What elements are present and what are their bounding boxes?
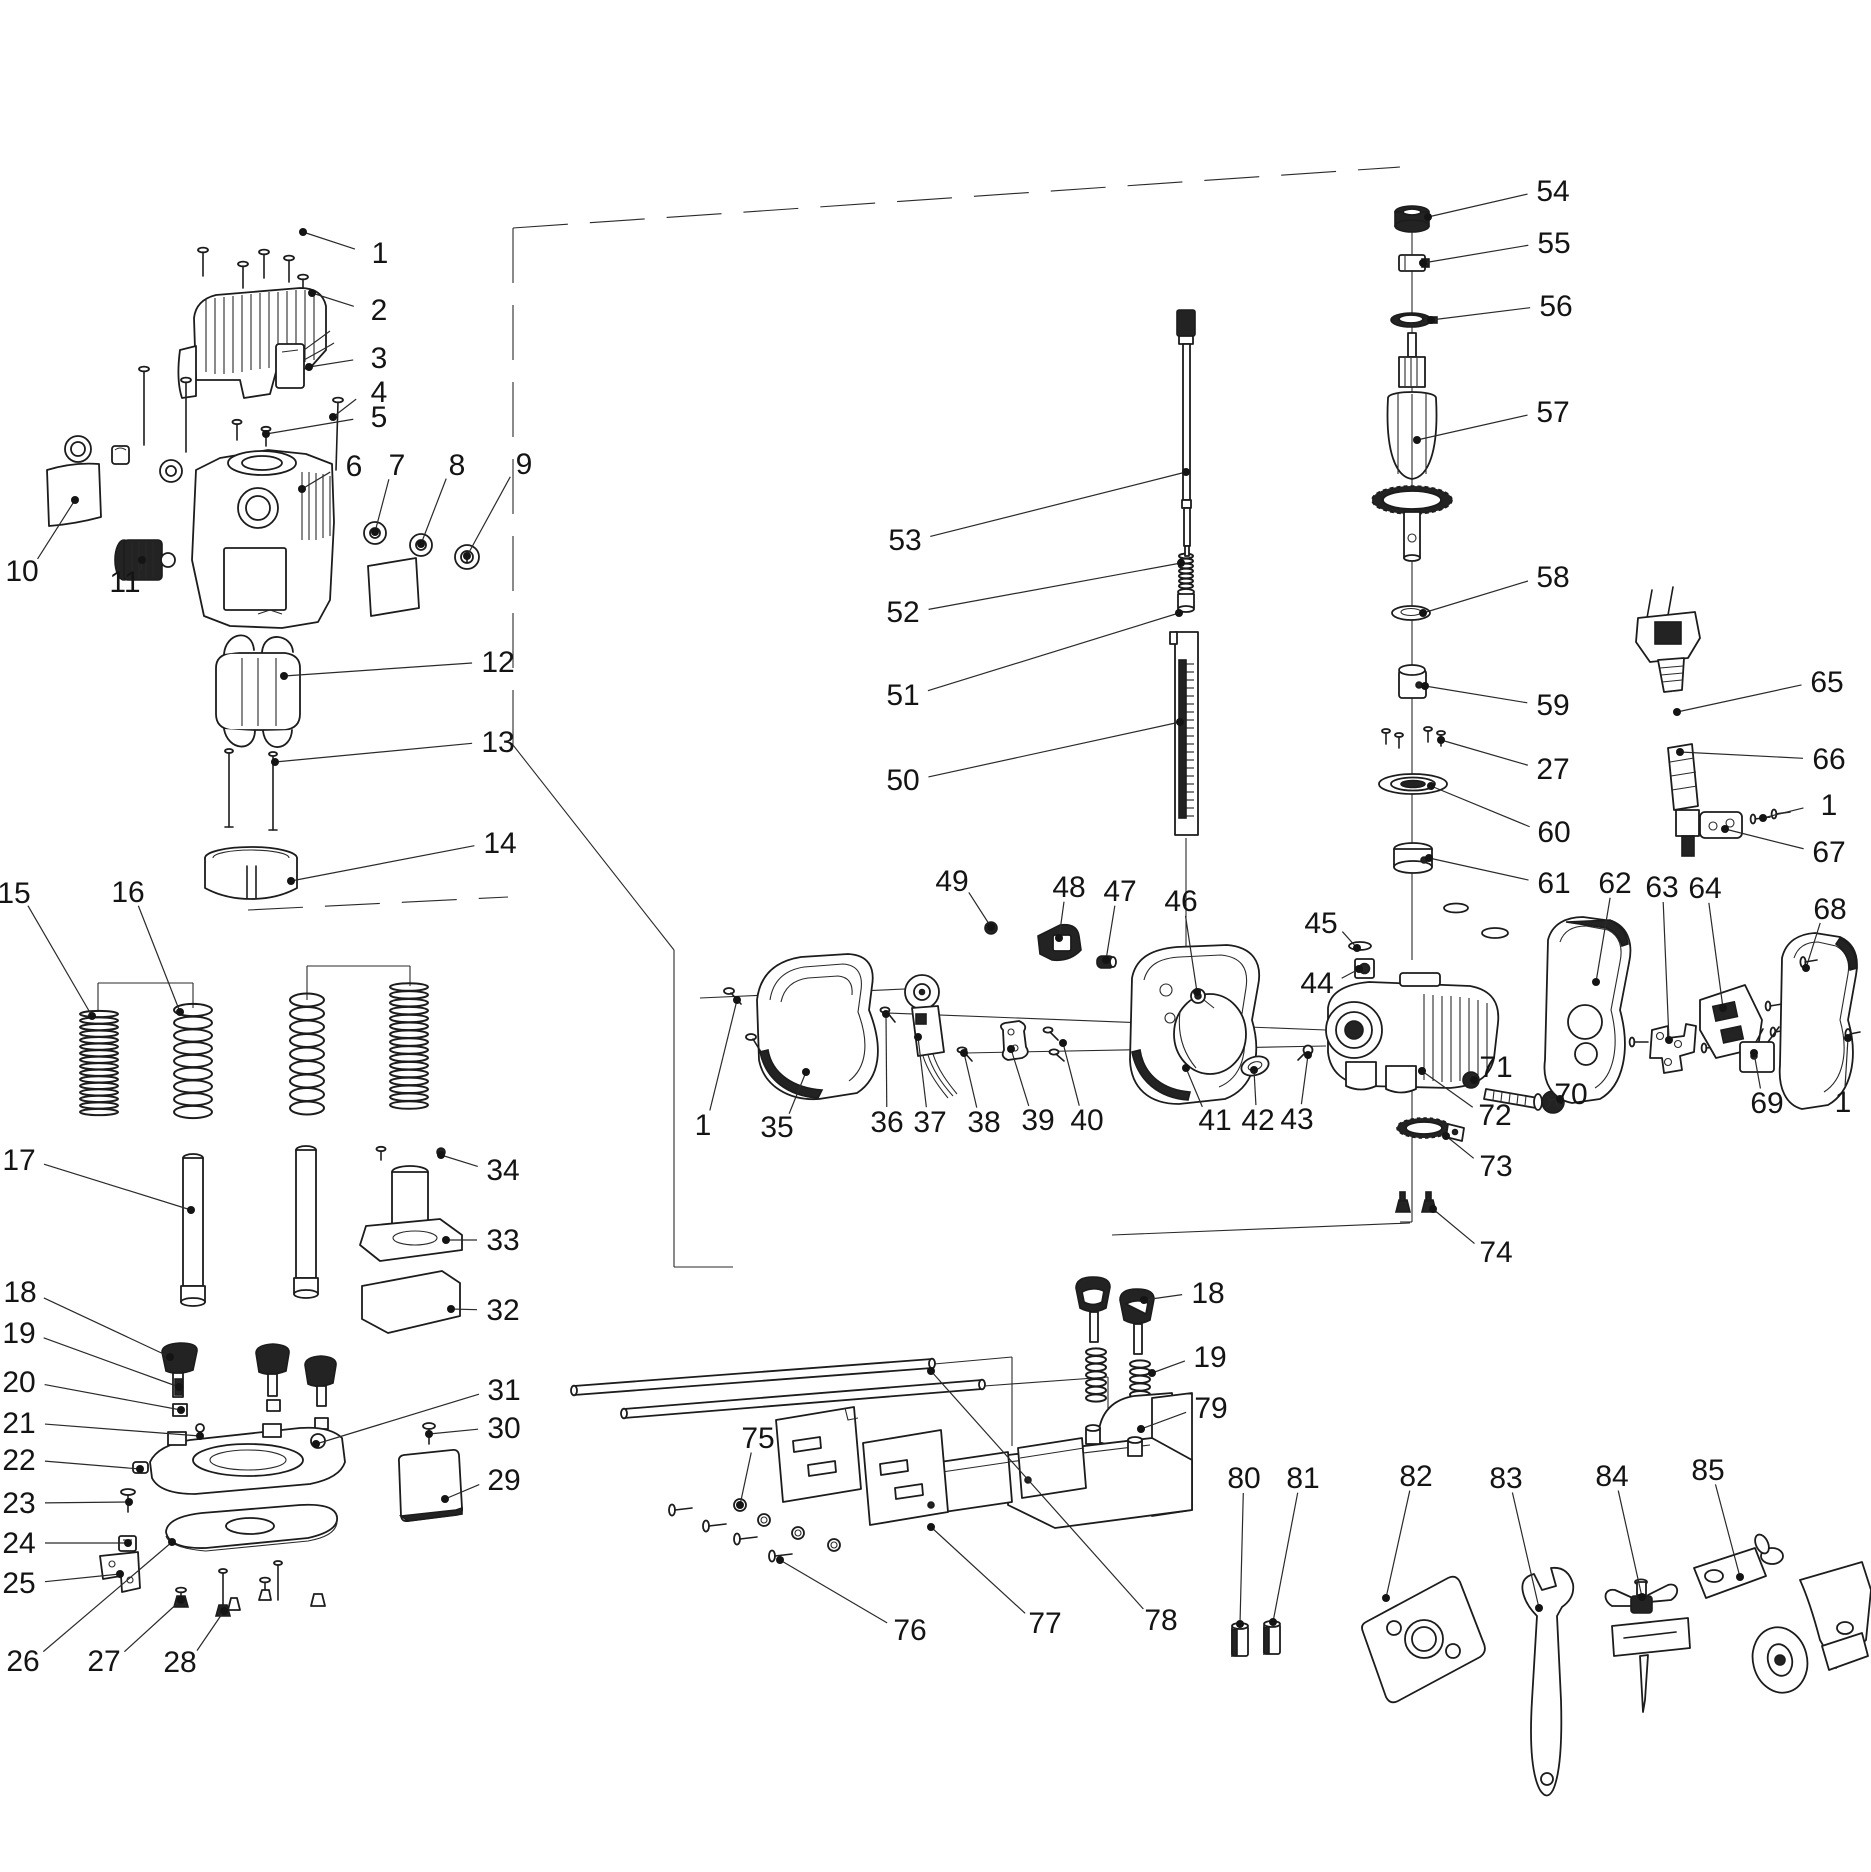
leader-dot bbox=[1418, 1067, 1426, 1075]
part-number: 62 bbox=[1598, 867, 1631, 900]
part-number: 1 bbox=[1835, 1086, 1852, 1119]
leader-line bbox=[45, 1424, 200, 1436]
callout-22: 22 bbox=[2, 1444, 144, 1477]
callout-43: 43 bbox=[1280, 1051, 1313, 1136]
gear-housing-cluster bbox=[1326, 917, 1860, 1212]
part-number: 10 bbox=[5, 555, 38, 588]
leader-line bbox=[441, 1155, 478, 1166]
part-number: 24 bbox=[2, 1527, 35, 1560]
leader-line bbox=[1433, 1209, 1475, 1244]
leader-line bbox=[45, 1461, 140, 1469]
edge-guide-assembly bbox=[571, 1277, 1192, 1562]
leader-line bbox=[266, 419, 353, 434]
callout-50: 50 bbox=[886, 718, 1184, 797]
leader-dot bbox=[1721, 825, 1729, 833]
callout-77: 77 bbox=[927, 1523, 1062, 1640]
callout-30: 30 bbox=[425, 1412, 521, 1445]
leader-line bbox=[710, 1000, 737, 1111]
plunge-spring-inner-right bbox=[290, 994, 324, 1115]
dust-cover bbox=[362, 1271, 460, 1333]
leader-dot bbox=[1535, 1604, 1543, 1612]
leader-line bbox=[929, 563, 1181, 609]
part-number: 5 bbox=[371, 401, 388, 434]
leader-dot bbox=[1424, 213, 1432, 221]
part-number: 23 bbox=[2, 1487, 35, 1520]
leader-dot bbox=[287, 877, 295, 885]
leader-dot bbox=[1137, 1425, 1145, 1433]
leader-line bbox=[780, 1560, 887, 1623]
leader-dot bbox=[138, 556, 146, 564]
part-number: 16 bbox=[111, 876, 144, 909]
leader-dot bbox=[914, 1033, 922, 1041]
leader-dot bbox=[1736, 1573, 1744, 1581]
accessories bbox=[1232, 1532, 1871, 1795]
leader-dot bbox=[927, 1367, 935, 1375]
leader-dot bbox=[960, 1049, 968, 1057]
nameplate-right bbox=[368, 558, 419, 616]
leader-dot bbox=[298, 485, 306, 493]
spindle-flange bbox=[1397, 1118, 1464, 1141]
leader-line bbox=[284, 663, 472, 676]
part-number: 1 bbox=[1821, 789, 1838, 822]
guide-knob-spring-1 bbox=[1086, 1348, 1106, 1401]
left-handle-screws bbox=[724, 988, 761, 1052]
part-number: 35 bbox=[760, 1111, 793, 1144]
part-number: 13 bbox=[481, 726, 514, 759]
leader-dot bbox=[177, 1406, 185, 1414]
callout-82: 82 bbox=[1382, 1460, 1433, 1602]
callout-54: 54 bbox=[1424, 175, 1570, 221]
wrench bbox=[1522, 1568, 1573, 1796]
right-handle-shell bbox=[1130, 945, 1259, 1104]
callout-1: 1 bbox=[695, 996, 741, 1142]
callout-39: 39 bbox=[1007, 1045, 1055, 1137]
part-number: 80 bbox=[1227, 1462, 1260, 1495]
part-number: 49 bbox=[935, 865, 968, 898]
callout-19: 19 bbox=[1148, 1341, 1227, 1377]
leader-dot bbox=[1425, 854, 1433, 862]
construction-line-10 bbox=[934, 1357, 1012, 1364]
leader-line bbox=[291, 846, 474, 881]
part-number: 42 bbox=[1241, 1104, 1274, 1137]
part-number: 73 bbox=[1479, 1150, 1512, 1183]
part-number: 68 bbox=[1813, 893, 1846, 926]
leader-dot bbox=[1421, 682, 1429, 690]
part-number: 15 bbox=[0, 877, 31, 910]
callout-73: 73 bbox=[1442, 1132, 1513, 1183]
leader-dot bbox=[1250, 1066, 1258, 1074]
leader-line bbox=[44, 1298, 170, 1357]
sub-base-plate bbox=[166, 1505, 337, 1551]
guide-rails bbox=[571, 1359, 985, 1419]
guide-posts bbox=[181, 1146, 318, 1306]
part-number: 84 bbox=[1595, 1460, 1628, 1493]
leader-dot bbox=[1353, 944, 1361, 952]
leader-dot bbox=[1676, 748, 1684, 756]
trammel-guide bbox=[1694, 1532, 1871, 1698]
leader-dot bbox=[1175, 609, 1183, 617]
leader-line bbox=[1273, 1493, 1298, 1622]
leader-dot bbox=[1177, 559, 1185, 567]
part-number: 71 bbox=[1479, 1051, 1512, 1084]
motor-housing bbox=[192, 450, 334, 628]
leader-dot bbox=[1182, 468, 1190, 476]
leader-dot bbox=[417, 540, 425, 548]
plunge-spring-outer-left bbox=[80, 1011, 118, 1115]
part-number: 27 bbox=[1536, 753, 1569, 786]
part-number: 38 bbox=[967, 1106, 1000, 1139]
bearing-screws bbox=[1382, 727, 1445, 748]
part-number: 48 bbox=[1052, 871, 1085, 904]
leader-line bbox=[1063, 1043, 1079, 1106]
guide-screws bbox=[669, 1499, 840, 1562]
depth-rod bbox=[1177, 310, 1195, 556]
callout-17: 17 bbox=[2, 1144, 195, 1214]
part-number: 81 bbox=[1286, 1462, 1319, 1495]
part-number: 22 bbox=[2, 1444, 35, 1477]
callout-49: 49 bbox=[935, 865, 995, 931]
part-number: 75 bbox=[741, 1422, 774, 1455]
leader-line bbox=[1431, 308, 1530, 320]
part-number: 9 bbox=[516, 448, 533, 481]
leader-line bbox=[1423, 581, 1528, 613]
leader-dot bbox=[1355, 965, 1363, 973]
part-number: 46 bbox=[1164, 885, 1197, 918]
part-number: 41 bbox=[1198, 1104, 1231, 1137]
leader-dot bbox=[305, 363, 313, 371]
leader-dot bbox=[116, 1570, 124, 1578]
leader-dot bbox=[1382, 1594, 1390, 1602]
leader-dot bbox=[1673, 708, 1681, 716]
nameplate-left bbox=[47, 464, 101, 526]
leader-line bbox=[1680, 752, 1803, 758]
washer-small bbox=[1482, 928, 1508, 938]
callout-40: 40 bbox=[1059, 1039, 1104, 1137]
switch-dial bbox=[905, 975, 957, 1098]
cover-screws bbox=[198, 248, 308, 293]
part-number: 7 bbox=[389, 449, 406, 482]
leader-dot bbox=[927, 1523, 935, 1531]
leader-dot bbox=[1437, 736, 1445, 744]
callout-5: 5 bbox=[262, 401, 387, 438]
part-number: 18 bbox=[1191, 1277, 1224, 1310]
leader-dot bbox=[271, 758, 279, 766]
part-number: 83 bbox=[1489, 1462, 1522, 1495]
part-number: 12 bbox=[481, 646, 514, 679]
leader-line bbox=[930, 472, 1186, 536]
callout-84: 84 bbox=[1595, 1460, 1646, 1601]
part-number: 58 bbox=[1536, 561, 1569, 594]
clamp-ring bbox=[205, 847, 297, 899]
callout-14: 14 bbox=[287, 827, 517, 885]
leader-dot bbox=[882, 1010, 890, 1018]
leader-line bbox=[303, 232, 355, 249]
leader-dot bbox=[1193, 988, 1201, 996]
part-number: 33 bbox=[486, 1224, 519, 1257]
leader-dot bbox=[1148, 1369, 1156, 1377]
leader-line bbox=[1240, 1493, 1243, 1624]
part-number: 69 bbox=[1750, 1087, 1783, 1120]
leader-dot bbox=[802, 1068, 810, 1076]
part-number: 63 bbox=[1645, 871, 1678, 904]
callout-47: 47 bbox=[1102, 875, 1137, 964]
leader-dot bbox=[136, 1465, 144, 1473]
part-number: 53 bbox=[888, 524, 921, 557]
leader-line bbox=[1301, 1055, 1308, 1104]
callout-8: 8 bbox=[417, 449, 465, 548]
leader-dot bbox=[1592, 978, 1600, 986]
leader-dot bbox=[1470, 1076, 1478, 1084]
leader-dot bbox=[736, 1501, 744, 1509]
leader-line bbox=[928, 722, 1180, 777]
leader-dot bbox=[1719, 1004, 1727, 1012]
leader-line bbox=[1106, 906, 1115, 960]
leader-dot bbox=[442, 1236, 450, 1244]
construction-line-3 bbox=[513, 745, 674, 950]
part-number: 1 bbox=[372, 237, 389, 270]
base-knob-2 bbox=[256, 1344, 289, 1411]
leader-line bbox=[1428, 194, 1528, 217]
leader-dot bbox=[1059, 1039, 1067, 1047]
callout-76: 76 bbox=[776, 1556, 927, 1647]
plunge-base-assembly bbox=[100, 1343, 462, 1616]
part-number: 39 bbox=[1021, 1104, 1054, 1137]
leader-dot bbox=[166, 1353, 174, 1361]
callout-15: 15 bbox=[0, 877, 96, 1020]
callout-59: 59 bbox=[1421, 682, 1570, 722]
part-number: 20 bbox=[2, 1366, 35, 1399]
part-number: 2 bbox=[371, 294, 388, 327]
leader-dot bbox=[463, 552, 471, 560]
leader-line bbox=[928, 613, 1179, 691]
leader-dot bbox=[1055, 934, 1063, 942]
part-number: 3 bbox=[371, 342, 388, 375]
leader-line bbox=[1709, 903, 1723, 1008]
leader-line bbox=[1618, 1491, 1642, 1597]
part-number: 36 bbox=[870, 1106, 903, 1139]
clamp-plate-2 bbox=[863, 1430, 948, 1525]
leader-dot bbox=[441, 1495, 449, 1503]
leader-dot bbox=[1182, 1064, 1190, 1072]
callout-63: 63 bbox=[1645, 871, 1678, 1044]
contact-plate bbox=[1001, 1021, 1028, 1060]
base-side-parts bbox=[100, 1462, 148, 1592]
leader-dot bbox=[1236, 1620, 1244, 1628]
part-number: 34 bbox=[486, 1154, 519, 1187]
leader-line bbox=[1425, 686, 1527, 703]
part-number: 79 bbox=[1194, 1392, 1227, 1425]
clamp-plate-1 bbox=[776, 1407, 861, 1502]
leader-dot bbox=[425, 1430, 433, 1438]
part-number: 78 bbox=[1144, 1604, 1177, 1637]
cover-plate bbox=[399, 1423, 462, 1521]
part-number: 17 bbox=[2, 1144, 35, 1177]
callout-66: 66 bbox=[1676, 743, 1846, 776]
power-cord bbox=[1636, 587, 1790, 856]
part-number: 50 bbox=[886, 764, 919, 797]
leader-dot bbox=[71, 496, 79, 504]
construction-line-21 bbox=[888, 1013, 1326, 1030]
callout-53: 53 bbox=[888, 468, 1190, 557]
part-number: 25 bbox=[2, 1567, 35, 1600]
construction-line-0 bbox=[513, 167, 1400, 228]
leader-dot bbox=[88, 1012, 96, 1020]
leader-line bbox=[45, 1502, 129, 1503]
callout-75: 75 bbox=[736, 1422, 775, 1509]
leader-dot bbox=[371, 528, 379, 536]
leader-dot bbox=[220, 1607, 228, 1615]
part-number: 82 bbox=[1399, 1460, 1432, 1493]
part-number: 77 bbox=[1028, 1607, 1061, 1640]
leader-dot bbox=[1427, 782, 1435, 790]
leader-line bbox=[1677, 685, 1802, 712]
part-number: 59 bbox=[1536, 689, 1569, 722]
motor-housing-half bbox=[1544, 917, 1630, 1103]
part-number: 47 bbox=[1103, 875, 1136, 908]
guide-knob-1 bbox=[1076, 1277, 1110, 1342]
leader-dot bbox=[175, 1383, 183, 1391]
part-number: 32 bbox=[486, 1294, 519, 1327]
leader-dot bbox=[299, 228, 307, 236]
part-number: 31 bbox=[487, 1374, 520, 1407]
construction-line-2 bbox=[248, 897, 508, 910]
leader-dot bbox=[168, 1538, 176, 1546]
fan bbox=[1395, 206, 1429, 232]
callout-1: 1 bbox=[299, 228, 388, 270]
part-number: 28 bbox=[163, 1646, 196, 1679]
part-number: 61 bbox=[1537, 867, 1570, 900]
part-number: 45 bbox=[1304, 907, 1337, 940]
leader-line bbox=[740, 1452, 751, 1505]
stator bbox=[216, 635, 300, 747]
leader-dot bbox=[733, 996, 741, 1004]
plunge-spring-inner-left bbox=[174, 1004, 212, 1118]
outer-handle-shell bbox=[1780, 933, 1860, 1109]
centering-pin bbox=[1606, 1579, 1690, 1712]
leader-dot bbox=[1176, 718, 1184, 726]
leader-line bbox=[197, 1611, 224, 1651]
callout-58: 58 bbox=[1419, 561, 1570, 617]
part-number: 30 bbox=[487, 1412, 520, 1445]
callout-60: 60 bbox=[1427, 782, 1571, 849]
callout-61: 61 bbox=[1425, 854, 1571, 900]
leader-dot bbox=[176, 1008, 184, 1016]
part-number: 56 bbox=[1539, 290, 1572, 323]
leader-dot bbox=[447, 1305, 455, 1313]
part-number: 55 bbox=[1537, 227, 1570, 260]
dust-port bbox=[360, 1166, 462, 1261]
leader-line bbox=[275, 743, 472, 762]
part-number: 72 bbox=[1478, 1099, 1511, 1132]
callout-81: 81 bbox=[1269, 1462, 1320, 1626]
part-number: 6 bbox=[346, 450, 363, 483]
leader-line bbox=[1763, 808, 1803, 818]
leader-dot bbox=[196, 1432, 204, 1440]
callout-23: 23 bbox=[2, 1487, 133, 1520]
leader-dot bbox=[1750, 1049, 1758, 1057]
part-number: 85 bbox=[1691, 1454, 1724, 1487]
rod-adjuster bbox=[1178, 589, 1194, 612]
part-number: 70 bbox=[1554, 1078, 1587, 1111]
leader-line bbox=[1663, 902, 1669, 1040]
base-knob-1 bbox=[162, 1343, 197, 1416]
leader-dot bbox=[329, 413, 337, 421]
stator-bolts bbox=[225, 749, 277, 830]
exploded-parts-diagram: 1234567891011121314151617181920212223242… bbox=[0, 0, 1871, 1872]
part-number: 40 bbox=[1070, 1104, 1103, 1137]
callout-34: 34 bbox=[437, 1151, 520, 1187]
o-ring bbox=[1444, 904, 1468, 913]
depth-rod-spring bbox=[1179, 554, 1193, 589]
callout-56: 56 bbox=[1427, 290, 1573, 324]
part-number: 21 bbox=[2, 1407, 35, 1440]
dust-port-screws bbox=[377, 1147, 446, 1160]
part-number: 57 bbox=[1536, 396, 1569, 429]
leader-dot bbox=[987, 923, 995, 931]
part-number: 44 bbox=[1300, 967, 1333, 1000]
part-number: 11 bbox=[109, 566, 140, 599]
leader-dot bbox=[1442, 1132, 1450, 1140]
leader-dot bbox=[437, 1151, 445, 1159]
leader-dot bbox=[776, 1556, 784, 1564]
leader-dot bbox=[1427, 316, 1435, 324]
leader-line bbox=[124, 1600, 181, 1652]
leader-line bbox=[44, 1338, 179, 1387]
leader-dot bbox=[1759, 814, 1767, 822]
leader-line bbox=[1386, 1491, 1410, 1598]
handle-assembly bbox=[724, 922, 1374, 1104]
part-number: 67 bbox=[1812, 836, 1845, 869]
callout-83: 83 bbox=[1489, 1462, 1543, 1612]
part-number: 51 bbox=[886, 679, 919, 712]
armature-assembly bbox=[1372, 206, 1508, 938]
leader-dot bbox=[1102, 956, 1110, 964]
callout-38: 38 bbox=[960, 1049, 1001, 1139]
leader-dot bbox=[1665, 1036, 1673, 1044]
leader-dot bbox=[1413, 436, 1421, 444]
leader-dot bbox=[1844, 1034, 1852, 1042]
leader-dot bbox=[125, 1498, 133, 1506]
leader-line bbox=[1152, 1361, 1185, 1373]
callout-64: 64 bbox=[1688, 872, 1727, 1012]
leader-line bbox=[1423, 245, 1528, 263]
sleeve-81 bbox=[1264, 1621, 1280, 1654]
leader-line bbox=[969, 892, 991, 927]
leader-line bbox=[45, 1385, 181, 1410]
leader-dot bbox=[280, 672, 288, 680]
base-screws bbox=[174, 1561, 325, 1616]
leader-line bbox=[1431, 786, 1530, 827]
construction-line-9 bbox=[1112, 1223, 1410, 1235]
part-number: 14 bbox=[483, 827, 516, 860]
leader-dot bbox=[1140, 1296, 1148, 1304]
leader-dot bbox=[308, 289, 316, 297]
part-number: 65 bbox=[1810, 666, 1843, 699]
part-number: 29 bbox=[487, 1464, 520, 1497]
part-number: 27 bbox=[87, 1645, 120, 1678]
leader-dot bbox=[312, 1440, 320, 1448]
part-number: 52 bbox=[886, 596, 919, 629]
part-number: 60 bbox=[1537, 816, 1570, 849]
leader-line bbox=[964, 1053, 977, 1108]
leader-line bbox=[886, 1014, 887, 1107]
callout-13: 13 bbox=[271, 726, 515, 766]
leader-dot bbox=[1269, 1618, 1277, 1626]
leader-line bbox=[421, 479, 446, 544]
callout-55: 55 bbox=[1419, 227, 1571, 267]
leader-dot bbox=[1429, 1205, 1437, 1213]
callout-74: 74 bbox=[1429, 1205, 1513, 1269]
